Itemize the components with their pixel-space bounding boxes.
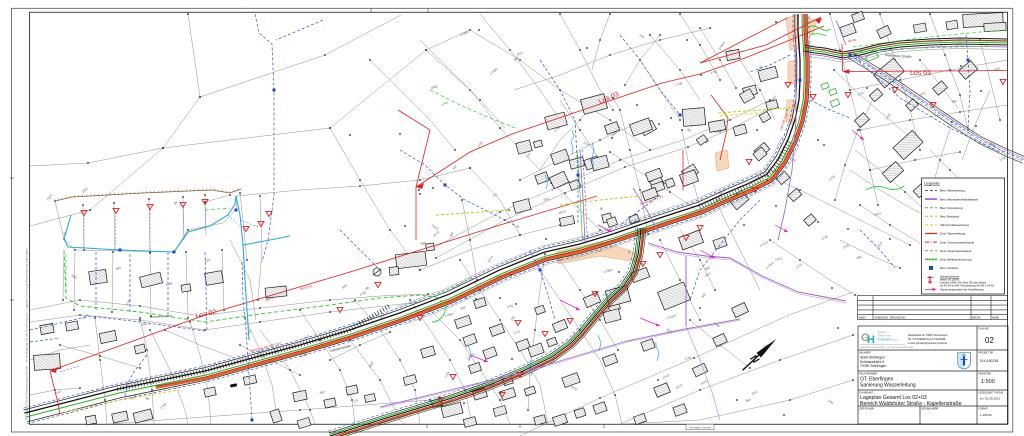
svg-text:Best. Schieber: Best. Schieber: [940, 266, 958, 270]
svg-text:Gepl. Regenwasserkanal: Gepl. Regenwasserkanal: [940, 249, 972, 253]
svg-text:Best. Wasserleitung: Best. Wasserleitung: [940, 189, 965, 193]
svg-text:Best. Breitband: Best. Breitband: [940, 215, 960, 219]
svg-text:Gepl. Wasserleitung: Gepl. Wasserleitung: [940, 232, 966, 236]
svg-text:Tel. 07742/92990 Fax 07742/: Tel. 07742/92990 Fax 07742/92992: [908, 338, 946, 341]
svg-text:Gepl. Schmutzwasserkanal: Gepl. Schmutzwasserkanal: [940, 240, 974, 244]
svg-text:Gutmann GmbH: Gutmann GmbH: [689, 426, 711, 430]
svg-text:Best. Stromleitung: Best. Stromleitung: [940, 206, 963, 210]
svg-text:GmbH: GmbH: [892, 340, 899, 342]
svg-text:Herbert: Herbert: [878, 330, 887, 334]
svg-text:Bereich Waldshuter Straße - Ka: Bereich Waldshuter Straße - Kapellenstra…: [860, 401, 962, 407]
svg-text:Gutmann: Gutmann: [878, 338, 892, 342]
svg-text:H: H: [867, 334, 875, 346]
svg-text:© Gutmann GmbH Ingenieurgesell: © Gutmann GmbH Ingenieurgesellschaft - V…: [25, 248, 29, 420]
svg-text:1.195.92: 1.195.92: [980, 413, 992, 417]
svg-text:e-mail: gutmann@gutmann-gmbh.d: e-mail: gutmann@gutmann-gmbh.de: [908, 342, 948, 345]
svg-text:Hauptstraße 16, 79862 Hohenten: Hauptstraße 16, 79862 Hohentengen: [908, 334, 948, 337]
svg-text:NAME: NAME: [992, 316, 999, 319]
svg-text:Abbruch Wasserleitung: Abbruch Wasserleitung: [940, 223, 969, 227]
svg-text:PROJEKT NR.: PROJEKT NR.: [979, 352, 995, 354]
svg-text:DER PLANER: DER PLANER: [860, 407, 875, 410]
svg-text:af / 01.09.2021: af / 01.09.2021: [980, 397, 1000, 401]
svg-text:Sanierungspunkte der Kanalleit: Sanierungspunkte der Kanalleitung: [940, 288, 984, 292]
svg-text:Best. Mischwasserkanalisation: Best. Mischwasserkanalisation: [940, 197, 979, 201]
svg-text:014-190218: 014-190218: [980, 359, 998, 363]
svg-text:INDEX: INDEX: [859, 316, 867, 319]
svg-text:Legende: Legende: [924, 181, 940, 186]
svg-text:BAUVORHABEN: BAUVORHABEN: [860, 372, 878, 375]
svg-text:ÄNDERUNG / ERGÄNZUNG: ÄNDERUNG / ERGÄNZUNG: [875, 316, 906, 319]
svg-text:GEZEICHNET / DATUM: GEZEICHNET / DATUM: [979, 391, 1004, 394]
svg-text:INGENIEURGESELLSCHAFT FÜR VERS: INGENIEURGESELLSCHAFT FÜR VERSORGUNGSTEC…: [860, 346, 914, 349]
svg-text:Los 01: Los 01: [910, 70, 931, 77]
svg-text:FORMAT: FORMAT: [979, 407, 989, 410]
svg-text:79780 Stühlingen: 79780 Stühlingen: [860, 364, 887, 368]
svg-text:PLAN NR.: PLAN NR.: [979, 328, 990, 331]
svg-text:1:500: 1:500: [981, 379, 995, 385]
svg-text:DATUM: DATUM: [972, 316, 980, 319]
svg-text:MASSSTAB: MASSSTAB: [979, 372, 992, 375]
svg-text:02: 02: [985, 336, 994, 345]
svg-text:BAUHERR: BAUHERR: [860, 351, 872, 354]
svg-text:Gepl. Breitbandsicherung: Gepl. Breitbandsicherung: [940, 258, 972, 262]
svg-text:Sanierung Wasserleitung: Sanierung Wasserleitung: [860, 383, 916, 389]
svg-text:DER BAUHERR: DER BAUHERR: [922, 407, 939, 410]
